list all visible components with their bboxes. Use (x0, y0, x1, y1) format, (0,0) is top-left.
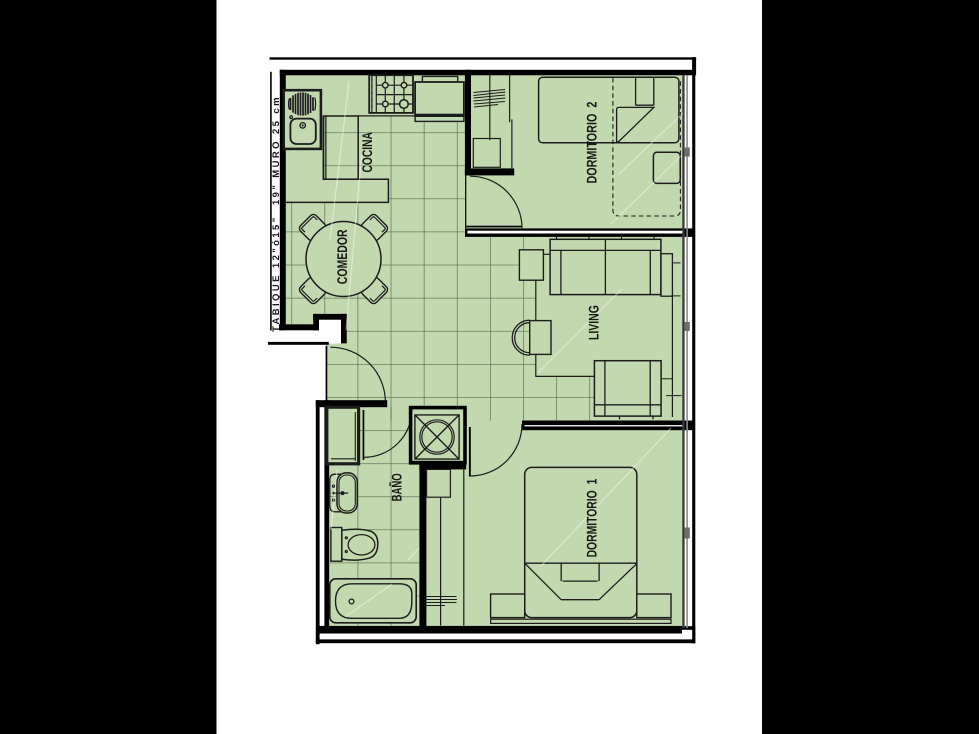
svg-text:TABIQUE 12"ó15": TABIQUE 12"ó15" (271, 215, 282, 332)
svg-text:COCINA: COCINA (359, 132, 375, 172)
svg-text:DORMITORIO 2: DORMITORIO 2 (584, 102, 600, 184)
svg-text:BAÑO: BAÑO (389, 473, 405, 501)
svg-text:19" MURO 25 cm: 19" MURO 25 cm (271, 95, 282, 205)
svg-text:DORMITORIO 1: DORMITORIO 1 (584, 479, 600, 558)
svg-text:COMEDOR: COMEDOR (334, 229, 350, 284)
svg-text:LIVING: LIVING (586, 305, 602, 340)
